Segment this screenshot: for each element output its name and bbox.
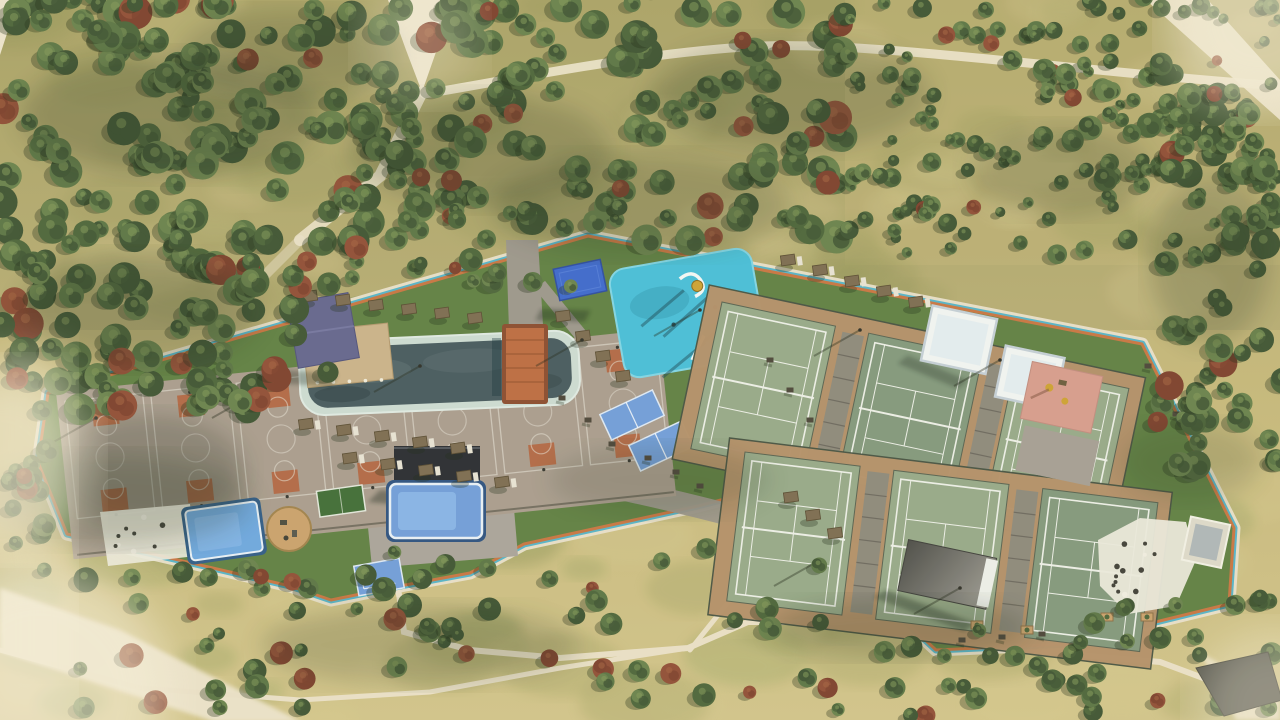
aerial-render — [0, 0, 1280, 720]
scene-canvas — [0, 0, 1280, 720]
warm-tint — [0, 0, 1280, 720]
